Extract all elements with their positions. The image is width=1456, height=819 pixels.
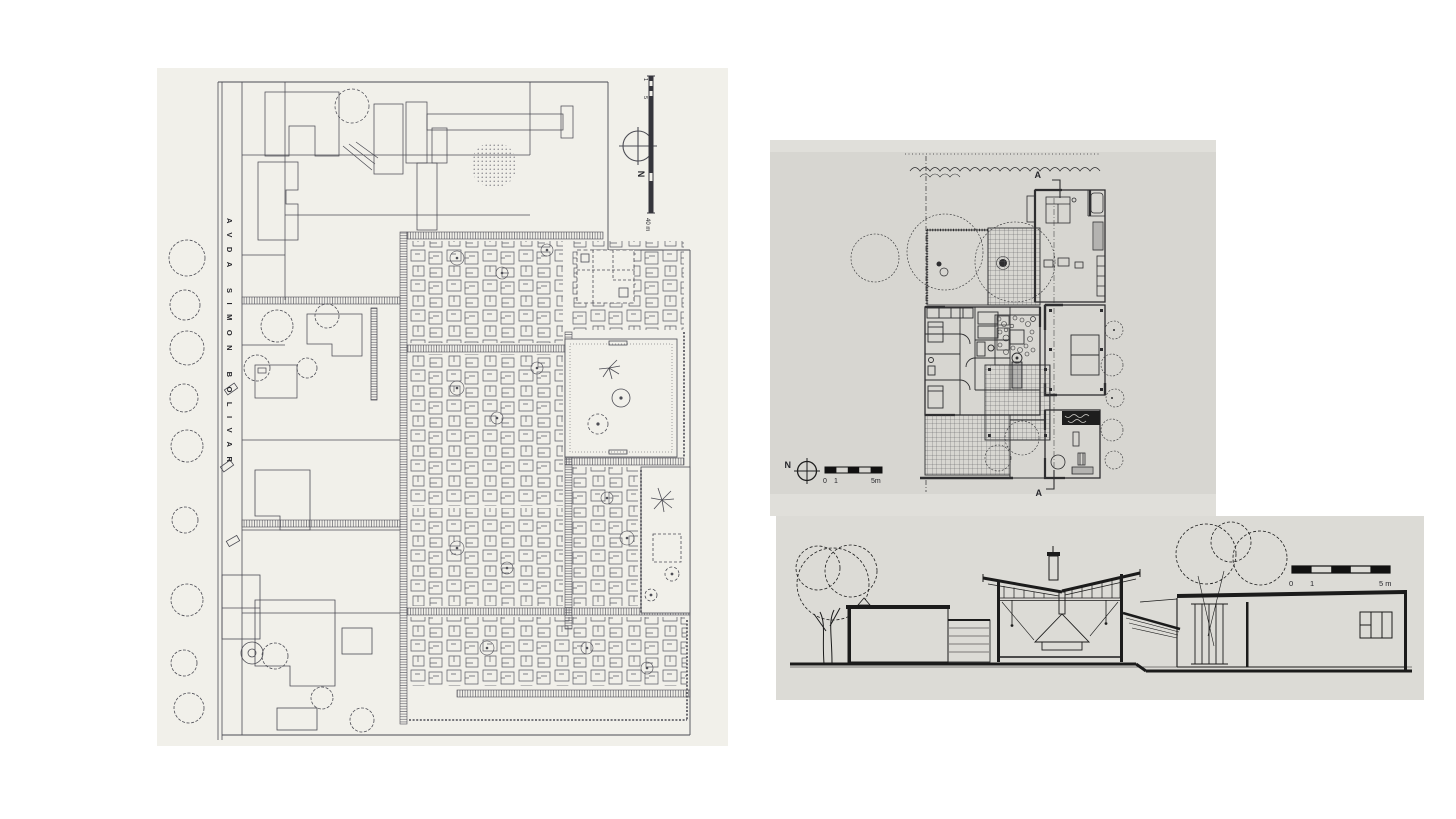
roof-vent (858, 598, 870, 605)
site-plan-panel: N 1 5 40 m AVDA SIMON BOLIVAR (157, 68, 728, 746)
left-building (846, 598, 950, 662)
building (417, 163, 437, 230)
sports-field (565, 339, 677, 457)
counter (997, 316, 1009, 325)
scale-tick: 40 m (644, 218, 650, 231)
scale-bar: 0 1 5 m (1289, 566, 1392, 588)
washbasin (929, 358, 934, 363)
section-marker-bottom: A (1036, 488, 1043, 498)
scale-tick: 5 m (1379, 579, 1392, 588)
door-swing (960, 334, 975, 390)
door-jamb (1246, 602, 1249, 667)
chimney (1049, 556, 1058, 580)
wall (997, 580, 1000, 662)
ramp (1123, 613, 1180, 638)
scale-tick: 1 (1310, 579, 1314, 588)
wardrobe (1012, 362, 1022, 388)
right-building (1140, 571, 1407, 670)
community-building (577, 250, 634, 303)
housing-cluster (409, 617, 687, 686)
chair (1044, 260, 1053, 267)
wardrobe (1093, 222, 1103, 250)
bench (1072, 467, 1093, 474)
building (406, 102, 427, 163)
north-arrow-icon: N (785, 458, 821, 484)
north-label: N (636, 171, 646, 178)
butterfly-roof (1062, 573, 1140, 591)
pavilion (983, 546, 1140, 662)
tree (1176, 522, 1287, 585)
wall (1404, 590, 1407, 670)
building (427, 114, 563, 130)
building (307, 314, 362, 356)
flue (1059, 592, 1065, 614)
scale-bar: 1 5 40 m (642, 76, 655, 231)
hearth (1042, 642, 1082, 650)
scan-edge (770, 494, 1216, 516)
garden-court (641, 467, 690, 613)
hedge (910, 168, 1100, 172)
fireplace-hood (1035, 614, 1089, 642)
glazed-wall (1191, 571, 1228, 664)
scale-tick: 1 (642, 78, 648, 81)
chair (1075, 262, 1083, 268)
floor-plan-drawing: A A N 0 1 5m (770, 140, 1216, 516)
sofa (1058, 258, 1069, 266)
window (1360, 612, 1392, 638)
appliance (1078, 453, 1085, 465)
chimney-cap (1047, 552, 1060, 556)
roof-slab (846, 605, 950, 609)
building (374, 104, 403, 174)
tree (471, 142, 517, 188)
building (258, 162, 298, 240)
scale-bar: 0 1 5m (823, 467, 882, 485)
scanned-architecture-page: N 1 5 40 m AVDA SIMON BOLIVAR (0, 0, 1456, 819)
planter (1062, 411, 1100, 425)
scale-tick: 5m (871, 478, 881, 485)
housing-cluster (572, 467, 638, 606)
floor-plan-panel: A A N 0 1 5m (770, 140, 1216, 516)
scale-tick: 0 (1289, 579, 1293, 588)
building (432, 128, 447, 163)
service-yard (1045, 410, 1100, 478)
grid-court (988, 228, 1040, 305)
bed (928, 322, 943, 342)
street-label: AVDA SIMON BOLIVAR (225, 218, 234, 471)
site-plan-drawing: N 1 5 40 m AVDA SIMON BOLIVAR (157, 68, 728, 746)
section-drawing: 0 1 5 m (776, 516, 1424, 700)
scale-tick: 0 (823, 478, 827, 485)
housing-cluster (409, 354, 563, 506)
roof-fascia (1177, 590, 1406, 598)
scale-tick: 1 (834, 478, 838, 485)
bathtub (1091, 193, 1103, 213)
housing-cluster (409, 508, 563, 606)
section-marker-top: A (1035, 170, 1042, 180)
tree (335, 89, 369, 123)
building (255, 365, 297, 398)
north-label: N (785, 460, 792, 470)
entry-court (927, 230, 988, 305)
section-line: A A (1035, 170, 1061, 498)
scale-tick: 5 (642, 96, 648, 99)
tree-trunk (937, 262, 942, 267)
entry-porch (1027, 196, 1035, 222)
scan-edge (770, 140, 1216, 152)
building (265, 92, 339, 156)
section-panel: 0 1 5 m (776, 516, 1424, 700)
toilet (928, 366, 935, 375)
building (342, 628, 372, 654)
bed (928, 386, 943, 408)
hedge (371, 308, 377, 400)
closet (927, 308, 973, 318)
planter (1010, 330, 1024, 344)
building (277, 708, 317, 730)
bathtub (977, 342, 985, 356)
link-wall (948, 620, 990, 662)
lower-plots (222, 470, 372, 730)
building (222, 575, 260, 639)
tank (241, 642, 263, 664)
wall (1120, 574, 1123, 662)
housing-cluster (409, 241, 563, 343)
door-leaf (1073, 432, 1079, 446)
basin (1051, 455, 1065, 469)
washbasin (988, 345, 994, 351)
